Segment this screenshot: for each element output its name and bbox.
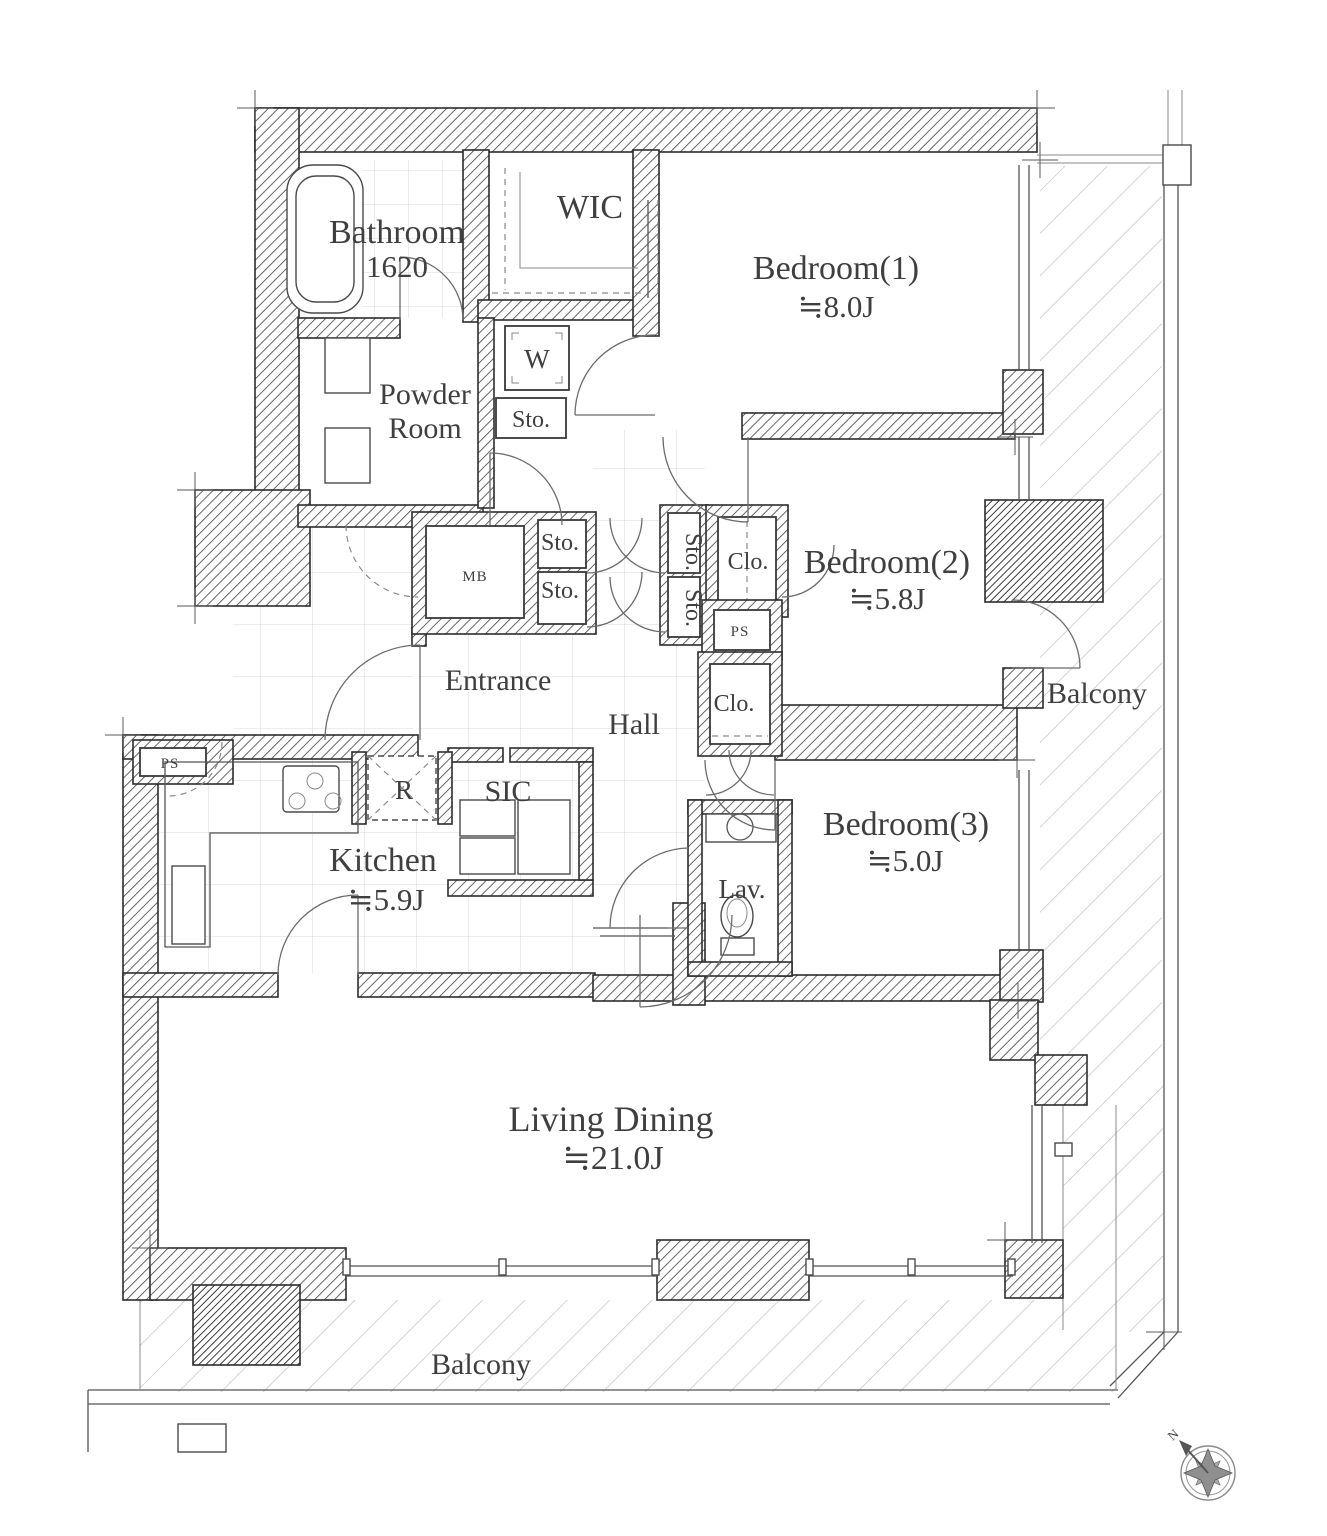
living-dining-label: Living Dining <box>509 1099 714 1139</box>
lav-counter <box>706 814 776 842</box>
bedroom2-label: Bedroom(2) <box>804 544 970 581</box>
powder-counter <box>325 338 370 393</box>
clo-bedroom2-label: Clo. <box>728 549 769 575</box>
door-bedroom1 <box>575 335 655 415</box>
balcony-unit-box <box>178 1424 226 1452</box>
powder-counter <box>325 428 370 483</box>
window-living-south-left <box>343 1259 659 1276</box>
bathroom-size-label: 1620 <box>366 249 428 284</box>
floor-plan-canvas: Bathroom 1620 WIC Bedroom(1) ≒8.0J Powde… <box>0 0 1327 1536</box>
living-dining-area-label: ≒21.0J <box>562 1140 663 1177</box>
kitchen-area-label: ≒5.9J <box>348 882 425 917</box>
bathroom-label: Bathroom <box>329 214 465 251</box>
clo-bedroom3-label: Clo. <box>714 691 755 717</box>
ps-kitchen-label: PS <box>161 756 180 772</box>
window-bedroom3 <box>1019 770 1029 950</box>
kitchen-label: Kitchen <box>329 842 437 879</box>
window-living-right <box>1032 1105 1042 1243</box>
entrance-label: Entrance <box>445 664 552 697</box>
wic-rails <box>492 168 646 293</box>
wic-label: WIC <box>557 189 623 226</box>
window-bedroom1 <box>1019 165 1029 370</box>
compass-rose: N <box>1164 1426 1235 1500</box>
drain-pipe <box>1055 1143 1072 1156</box>
powder-room-label-1: Powder <box>379 378 471 411</box>
bedroom1-label: Bedroom(1) <box>753 250 919 287</box>
washer-label: W <box>524 344 550 374</box>
bedroom2-area-label: ≒5.8J <box>849 581 926 616</box>
kitchen-sink <box>172 866 205 944</box>
powder-room-label-2: Room <box>388 412 461 445</box>
refrigerator-label: R <box>395 775 413 805</box>
sic-label: SIC <box>485 775 532 808</box>
bedroom1-area-label: ≒8.0J <box>798 289 875 324</box>
railing-post <box>1163 145 1191 185</box>
lavatory-label: Lav. <box>719 874 766 904</box>
bedroom3-area-label: ≒5.0J <box>867 843 944 878</box>
ps-hall-label: PS <box>731 624 750 640</box>
bedroom3-label: Bedroom(3) <box>823 806 989 843</box>
sto-side-1-label: Sto. <box>680 533 706 571</box>
balcony-right-label: Balcony <box>1047 677 1147 710</box>
sto-powder-label: Sto. <box>512 407 550 433</box>
balcony-bottom-label: Balcony <box>431 1348 531 1381</box>
stove <box>283 766 339 812</box>
balcony-right-floor <box>1040 166 1162 1060</box>
sto-hall-2-label: Sto. <box>541 578 579 604</box>
sto-hall-1-label: Sto. <box>541 530 579 556</box>
window-living-south-right <box>806 1259 1015 1276</box>
meter-box-label: MB <box>462 569 487 585</box>
floor-plan-page: Bathroom 1620 WIC Bedroom(1) ≒8.0J Powde… <box>0 0 1327 1536</box>
hall-label: Hall <box>608 708 660 741</box>
window-bedroom2 <box>1019 437 1029 500</box>
sto-side-2-label: Sto. <box>680 589 706 627</box>
